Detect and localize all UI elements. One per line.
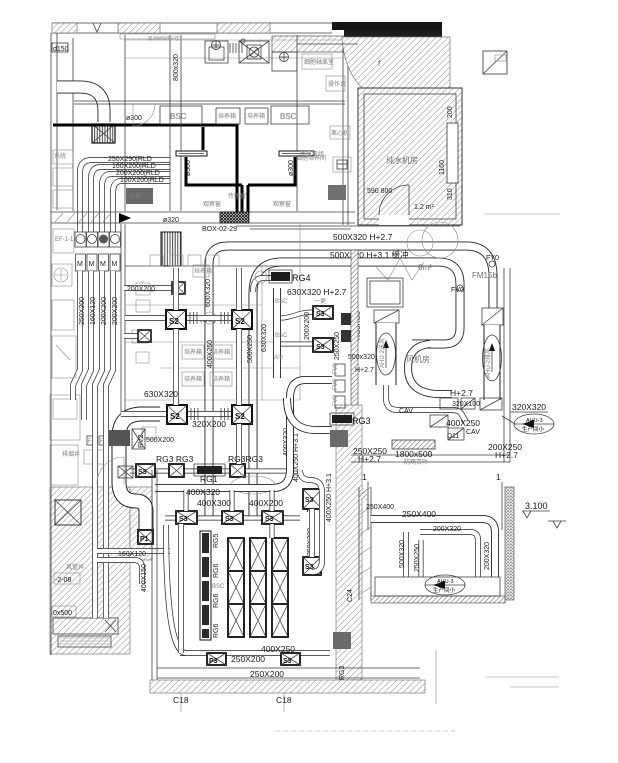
svg-text:M: M (112, 261, 118, 268)
svg-text:BSC: BSC (170, 112, 187, 121)
svg-text:BSC: BSC (275, 299, 288, 305)
svg-text:250X290|RLD: 250X290|RLD (108, 156, 152, 163)
svg-text:400X250: 400X250 (207, 340, 214, 368)
svg-text:RG4: RG4 (292, 273, 311, 283)
svg-text:160X120: 160X120 (90, 297, 97, 325)
svg-text:FM15b: FM15b (472, 271, 497, 280)
svg-text:250X200: 250X200 (79, 297, 86, 325)
svg-text:200: 200 (447, 106, 454, 118)
svg-text:RG3 RG3: RG3 RG3 (156, 454, 194, 464)
svg-text:培养箱: 培养箱 (247, 112, 265, 120)
svg-text:100X200|RLD: 100X200|RLD (120, 177, 164, 184)
svg-text:S2: S2 (235, 317, 245, 326)
svg-text:320X100: 320X100 (452, 401, 480, 408)
svg-text:S2: S2 (235, 412, 245, 421)
svg-text:RG3: RG3 (339, 666, 346, 681)
svg-text:400X250 H+3.1: 400X250 H+3.1 (326, 473, 333, 522)
svg-text:1.2 m²: 1.2 m² (414, 204, 435, 211)
svg-text:M: M (77, 261, 83, 268)
svg-text:P1: P1 (140, 536, 149, 543)
svg-text:AHU-2排风: AHU-2排风 (484, 348, 492, 378)
svg-text:RG5: RG5 (213, 534, 220, 549)
svg-text:200X200: 200X200 (101, 297, 108, 325)
svg-text:S3: S3 (265, 516, 274, 523)
svg-text:M: M (100, 261, 106, 268)
svg-text:C24: C24 (347, 589, 354, 602)
svg-text:RG3: RG3 (352, 416, 371, 426)
svg-text:500X320 H+3.1 缓冲: 500X320 H+3.1 缓冲 (330, 250, 409, 260)
svg-text:AHU-2送风: AHU-2送风 (378, 338, 386, 368)
svg-text:0x500: 0x500 (53, 610, 72, 617)
svg-text:500x320: 500x320 (348, 354, 375, 361)
svg-text:250X200: 250X200 (231, 654, 265, 664)
svg-text:水箱: 水箱 (129, 192, 141, 200)
svg-text:RG6: RG6 (213, 594, 220, 609)
svg-text:培养箱: 培养箱 (218, 112, 236, 120)
svg-text:观察窗: 观察窗 (203, 200, 221, 208)
svg-text:200X200: 200X200 (112, 297, 119, 325)
svg-text:6m²: 6m² (418, 263, 432, 272)
svg-text:BOX-02-29: BOX-02-29 (202, 226, 237, 233)
svg-text:400X200: 400X200 (249, 498, 283, 508)
svg-text:ø320: ø320 (163, 217, 179, 224)
svg-text:200X200: 200X200 (304, 312, 311, 340)
svg-text:S2: S2 (169, 317, 179, 326)
svg-text:观察窗: 观察窗 (273, 200, 291, 208)
svg-text:RG6: RG6 (213, 564, 220, 579)
svg-text:500X250: 500X250 (247, 335, 254, 363)
svg-text:培养箱: 培养箱 (184, 375, 202, 383)
svg-text:CAV: CAV (399, 408, 413, 415)
svg-text:风机房: 风机房 (406, 354, 430, 364)
svg-text:S3: S3 (305, 497, 314, 504)
svg-text:400X150: 400X150 (141, 564, 148, 592)
svg-text:600X320: 600X320 (205, 279, 212, 307)
svg-text:250X250: 250X250 (414, 544, 421, 572)
svg-text:160X200|RLD: 160X200|RLD (112, 163, 156, 170)
svg-text:排烟井: 排烟井 (62, 450, 80, 458)
svg-text:培养箱: 培养箱 (212, 348, 230, 356)
svg-text:H+2.7: H+2.7 (355, 367, 374, 374)
svg-text:500X200: 500X200 (146, 437, 174, 444)
svg-text:培养箱: 培养箱 (194, 267, 212, 275)
svg-text:S3: S3 (283, 658, 292, 665)
svg-text:一更: 一更 (314, 298, 326, 305)
svg-text:250X200: 250X200 (250, 669, 284, 679)
svg-text:1: 1 (496, 472, 501, 482)
svg-text:1160: 1160 (439, 160, 446, 175)
svg-text:操作台: 操作台 (328, 80, 346, 88)
svg-text:310: 310 (447, 188, 454, 200)
svg-text:200X320: 200X320 (484, 542, 491, 570)
svg-text:250X400: 250X400 (366, 504, 394, 511)
svg-text:RG6: RG6 (213, 624, 220, 639)
svg-text:RG1: RG1 (200, 474, 218, 484)
svg-text:S3: S3 (316, 344, 325, 351)
svg-text:250X250: 250X250 (334, 332, 341, 360)
svg-text:S3: S3 (225, 516, 234, 523)
svg-text:CAV: CAV (466, 429, 480, 436)
svg-text:传递窗: 传递窗 (228, 192, 246, 200)
svg-text:H+2.7: H+2.7 (495, 450, 518, 460)
svg-text:320X200: 320X200 (192, 419, 226, 429)
svg-text:S2: S2 (170, 412, 180, 421)
svg-text:H+2.7: H+2.7 (450, 388, 473, 398)
svg-text:BSC: BSC (280, 112, 297, 121)
svg-text:-2-08: -2-08 (55, 577, 71, 584)
svg-text:培养箱: 培养箱 (184, 348, 202, 356)
svg-text:250X400: 250X400 (402, 509, 436, 519)
svg-text:H+2.7: H+2.7 (358, 454, 381, 464)
svg-text:d150: d150 (53, 46, 69, 53)
svg-text:200X320: 200X320 (433, 526, 461, 533)
svg-text:RG3RG3: RG3RG3 (228, 454, 263, 464)
svg-text:630X320 H+2.7: 630X320 H+2.7 (287, 287, 347, 297)
svg-text:离心机: 离心机 (331, 129, 349, 137)
svg-text:S3: S3 (138, 469, 147, 476)
svg-text:纯水机房: 纯水机房 (386, 155, 418, 165)
svg-text:400X250: 400X250 (446, 418, 480, 428)
svg-text:FV0: FV0 (333, 378, 339, 390)
svg-text:D11: D11 (447, 433, 459, 440)
svg-text:590 800: 590 800 (367, 188, 392, 195)
svg-text:ø300: ø300 (126, 115, 142, 122)
svg-text:S3: S3 (179, 516, 188, 523)
svg-text:BSC: BSC (212, 584, 225, 590)
svg-text:200X200|RLD: 200X200|RLD (116, 170, 160, 177)
svg-text:500X320: 500X320 (399, 540, 406, 568)
svg-text:200X200: 200X200 (127, 286, 155, 293)
svg-text:320X320: 320X320 (512, 402, 546, 412)
svg-text:630X320: 630X320 (261, 324, 268, 352)
svg-text:防雨百叶: 防雨百叶 (404, 458, 428, 466)
svg-text:3.100: 3.100 (525, 501, 548, 511)
svg-text:160X120: 160X120 (118, 551, 146, 558)
svg-text:系统: 系统 (54, 152, 66, 160)
svg-text:细胞轴离室: 细胞轴离室 (304, 58, 334, 66)
svg-text:S3: S3 (316, 311, 325, 318)
svg-text:EF-1-1: EF-1-1 (55, 237, 74, 243)
svg-text:FV0: FV0 (333, 394, 339, 406)
svg-text:500X320 H+2.7: 500X320 H+2.7 (333, 232, 393, 242)
svg-text:FV0: FV0 (333, 362, 339, 374)
svg-text:A②: A② (274, 354, 283, 361)
svg-text:RV2: RV2 (138, 434, 145, 448)
svg-text:630X320: 630X320 (144, 389, 178, 399)
svg-text:400X300: 400X300 (197, 498, 231, 508)
svg-text:风管井: 风管井 (66, 563, 84, 571)
svg-text:1: 1 (362, 472, 367, 482)
svg-text:新风机组: 新风机组 (300, 150, 324, 158)
svg-text:最顶棚加用户区: 最顶棚加用户区 (148, 35, 180, 42)
svg-text:培养箱: 培养箱 (212, 375, 230, 383)
svg-text:P3: P3 (209, 658, 218, 665)
svg-text:M: M (89, 261, 95, 268)
svg-text:1800x500: 1800x500 (395, 449, 433, 459)
svg-text:BSC: BSC (275, 333, 288, 339)
svg-text:400X320: 400X320 (186, 487, 220, 497)
